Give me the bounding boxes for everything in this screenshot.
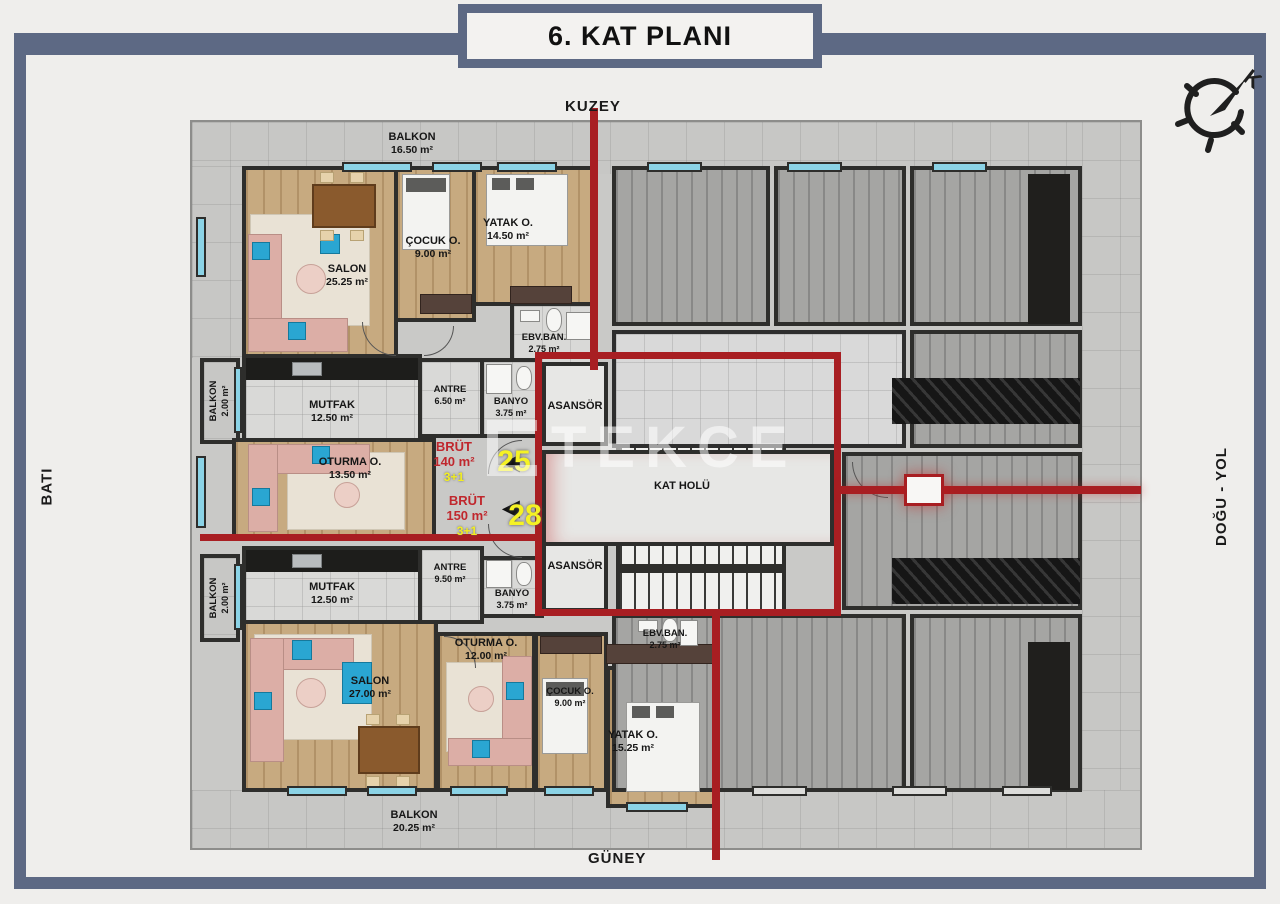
room-label-yatak-south: YATAK O.15.25 m² bbox=[608, 728, 658, 756]
kitchen-counter bbox=[246, 358, 418, 380]
window bbox=[432, 162, 482, 172]
compass-icon: K bbox=[1170, 62, 1262, 158]
window bbox=[626, 802, 688, 812]
direction-west: BATI bbox=[38, 468, 55, 506]
sofa bbox=[448, 738, 532, 766]
pillow bbox=[516, 178, 534, 190]
room-label-salon-south: SALON27.00 m² bbox=[349, 674, 391, 702]
window bbox=[196, 456, 206, 528]
plan-title-box: 6. KAT PLANI bbox=[458, 4, 822, 68]
window bbox=[196, 217, 206, 277]
unit-boundary-north bbox=[590, 108, 598, 370]
chair bbox=[350, 230, 364, 241]
svg-text:K: K bbox=[1239, 64, 1262, 94]
unit-boundary-east bbox=[841, 486, 1141, 494]
unit-boundary-south bbox=[712, 610, 720, 860]
room-label-ebvban-south: EBV.BAN.2.75 m² bbox=[643, 628, 688, 652]
unit-25-brut-tag: BRÜT 25 140 m² 3+1 bbox=[424, 440, 540, 484]
coffee-table bbox=[296, 678, 326, 708]
pillow bbox=[632, 706, 650, 718]
coffee-table bbox=[296, 264, 326, 294]
kitchen-sink bbox=[292, 362, 322, 376]
window bbox=[752, 786, 807, 796]
toilet bbox=[546, 308, 562, 332]
window bbox=[497, 162, 557, 172]
cushion bbox=[252, 242, 270, 260]
frame-bottom bbox=[14, 877, 1266, 889]
dining-table bbox=[358, 726, 420, 774]
room-label-cocuk-south: ÇOCUK O.9.00 m² bbox=[546, 686, 594, 710]
unit-28-brut-tag: BRÜT 28 150 m² 3+1 bbox=[438, 494, 550, 538]
gray-marble-top bbox=[892, 378, 1080, 424]
cushion bbox=[292, 640, 312, 660]
chair bbox=[366, 714, 380, 725]
frame-left bbox=[14, 33, 26, 889]
room-label-balkon-side-north: BALKON2.00 m² bbox=[208, 381, 232, 422]
cushion bbox=[252, 488, 270, 506]
east-entry-door bbox=[904, 474, 944, 506]
cushion bbox=[506, 682, 524, 700]
kitchen-counter bbox=[246, 550, 418, 572]
chair bbox=[320, 172, 334, 183]
pillow bbox=[406, 178, 446, 192]
window bbox=[287, 786, 347, 796]
label-elevator-top: ASANSÖR bbox=[547, 399, 602, 413]
gray-closet-top bbox=[1028, 174, 1070, 324]
wardrobe bbox=[540, 636, 602, 654]
wardrobe bbox=[420, 294, 472, 314]
room-label-antre-south: ANTRE9.50 m² bbox=[434, 562, 467, 586]
direction-east: DOĞU - YOL bbox=[1213, 447, 1230, 546]
gray-closet-bottom bbox=[1028, 642, 1070, 790]
room-label-balkon-side-south: BALKON2.00 m² bbox=[208, 578, 232, 619]
room-label-antre-north: ANTRE6.50 m² bbox=[434, 384, 467, 408]
room-label-oturma-north: OTURMA O.13.50 m² bbox=[319, 455, 382, 483]
room-label-oturma-south: OTURMA O.12.00 m² bbox=[455, 636, 518, 664]
direction-north: KUZEY bbox=[565, 98, 621, 115]
door-arc bbox=[424, 326, 454, 356]
shower bbox=[566, 312, 592, 340]
cushion bbox=[254, 692, 272, 710]
coffee-table bbox=[468, 686, 494, 712]
window bbox=[367, 786, 417, 796]
room-label-salon-north: SALON25.25 m² bbox=[326, 262, 368, 290]
room-label-ebvban-north: EBV.BAN.2.75 m² bbox=[522, 332, 567, 356]
pillow bbox=[656, 706, 674, 718]
direction-south: GÜNEY bbox=[588, 850, 646, 867]
gray-marble-bottom bbox=[892, 558, 1080, 604]
room-label-mutfak-south: MUTFAK12.50 m² bbox=[309, 580, 355, 608]
label-elevator-bottom: ASANSÖR bbox=[547, 559, 602, 573]
room-label-banyo-north: BANYO3.75 m² bbox=[494, 396, 528, 420]
window bbox=[932, 162, 987, 172]
cushion bbox=[288, 322, 306, 340]
kitchen-sink bbox=[292, 554, 322, 568]
label-floor-hall: KAT HOLÜ bbox=[654, 479, 710, 493]
room-label-mutfak-north: MUTFAK12.50 m² bbox=[309, 398, 355, 426]
shower bbox=[486, 560, 512, 588]
room-label-balkon-bottom: BALKON20.25 m² bbox=[390, 808, 437, 836]
cushion bbox=[472, 740, 490, 758]
window bbox=[892, 786, 947, 796]
wardrobe bbox=[510, 286, 572, 304]
window bbox=[234, 367, 242, 433]
window bbox=[787, 162, 842, 172]
room-label-cocuk-north: ÇOCUK O.9.00 m² bbox=[406, 234, 461, 262]
window bbox=[234, 564, 242, 630]
window bbox=[647, 162, 702, 172]
toilet bbox=[516, 366, 532, 390]
window bbox=[342, 162, 412, 172]
gray-room-2 bbox=[774, 166, 906, 326]
chair bbox=[350, 172, 364, 183]
room-label-yatak-north: YATAK O.14.50 m² bbox=[483, 216, 533, 244]
pillow bbox=[492, 178, 510, 190]
window bbox=[450, 786, 508, 796]
window bbox=[544, 786, 594, 796]
toilet bbox=[516, 562, 532, 586]
floor-plan: BALKON16.50 m² SALON25.25 m² ÇOCUK O.9.0… bbox=[190, 120, 1142, 850]
page-title: 6. KAT PLANI bbox=[548, 21, 732, 52]
chair bbox=[320, 230, 334, 241]
bath-sink bbox=[520, 310, 540, 322]
room-label-balkon-top: BALKON16.50 m² bbox=[388, 130, 435, 158]
shower bbox=[486, 364, 512, 394]
window bbox=[1002, 786, 1052, 796]
dining-table bbox=[312, 184, 376, 228]
chair bbox=[396, 714, 410, 725]
frame-right bbox=[1254, 33, 1266, 889]
terrace-right bbox=[1082, 122, 1140, 848]
coffee-table bbox=[334, 482, 360, 508]
room-label-banyo-south: BANYO3.75 m² bbox=[495, 588, 529, 612]
gray-room-1 bbox=[612, 166, 770, 326]
